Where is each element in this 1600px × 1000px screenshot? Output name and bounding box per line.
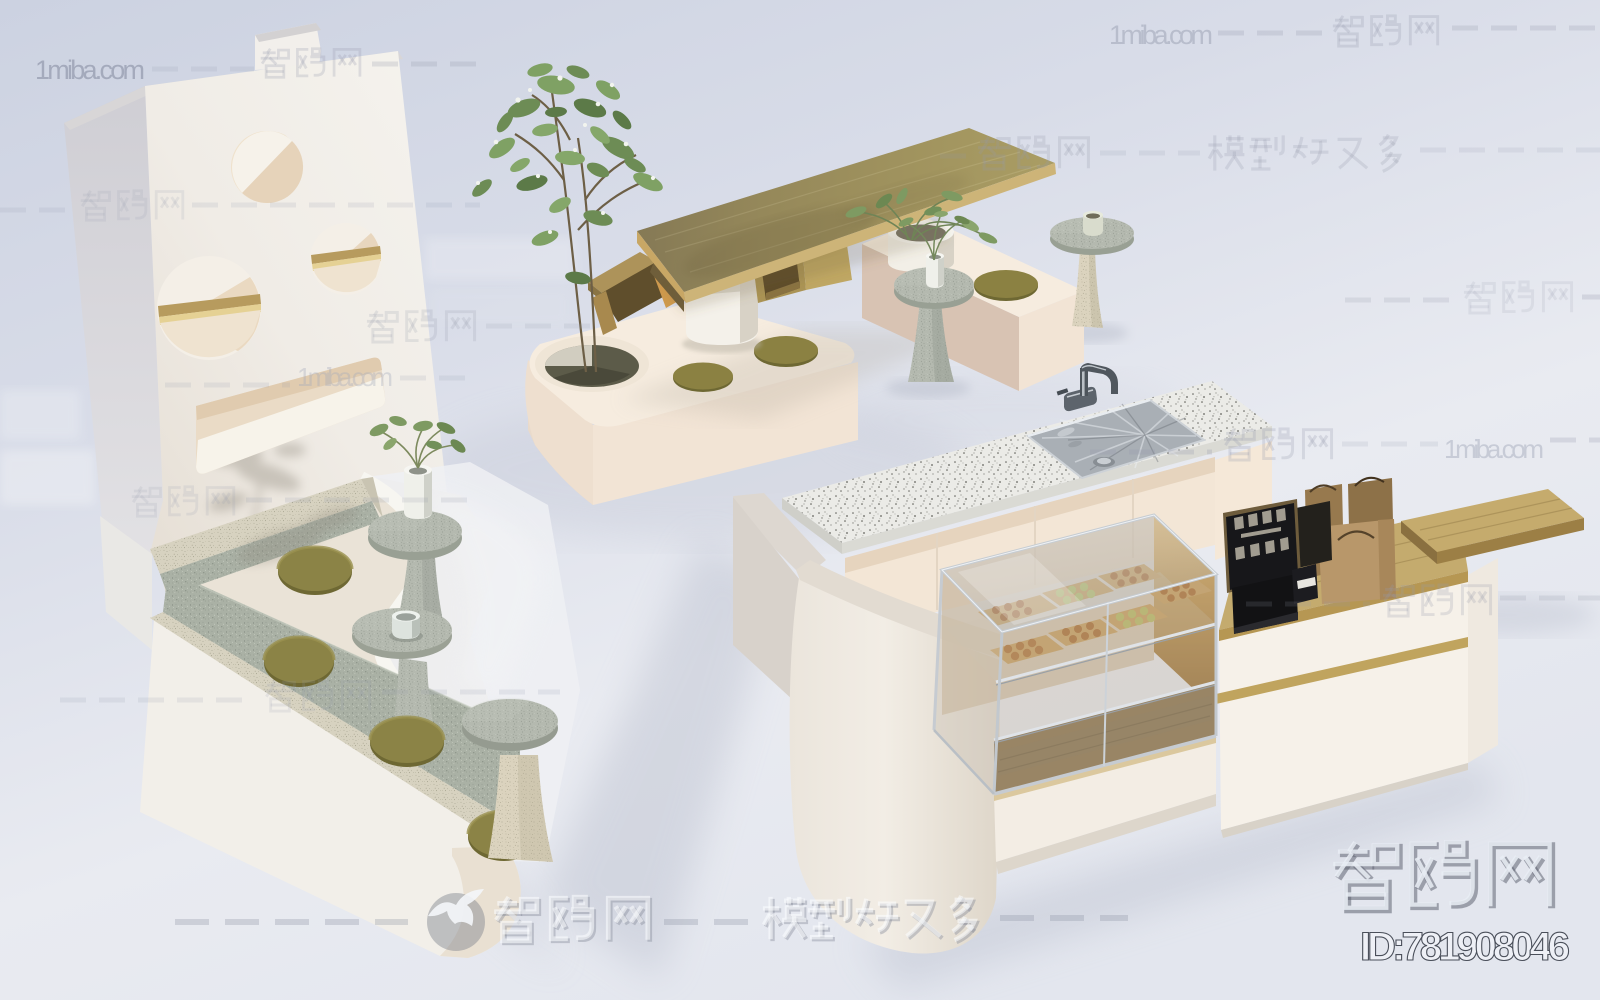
svg-text:1miba.com: 1miba.com	[1444, 434, 1544, 464]
svg-text:1miba.com: 1miba.com	[297, 362, 393, 392]
svg-text:1miba.com: 1miba.com	[35, 55, 145, 85]
svg-text:1miba.com: 1miba.com	[1109, 20, 1213, 50]
svg-text:ID:781908046: ID:781908046	[1360, 925, 1570, 969]
